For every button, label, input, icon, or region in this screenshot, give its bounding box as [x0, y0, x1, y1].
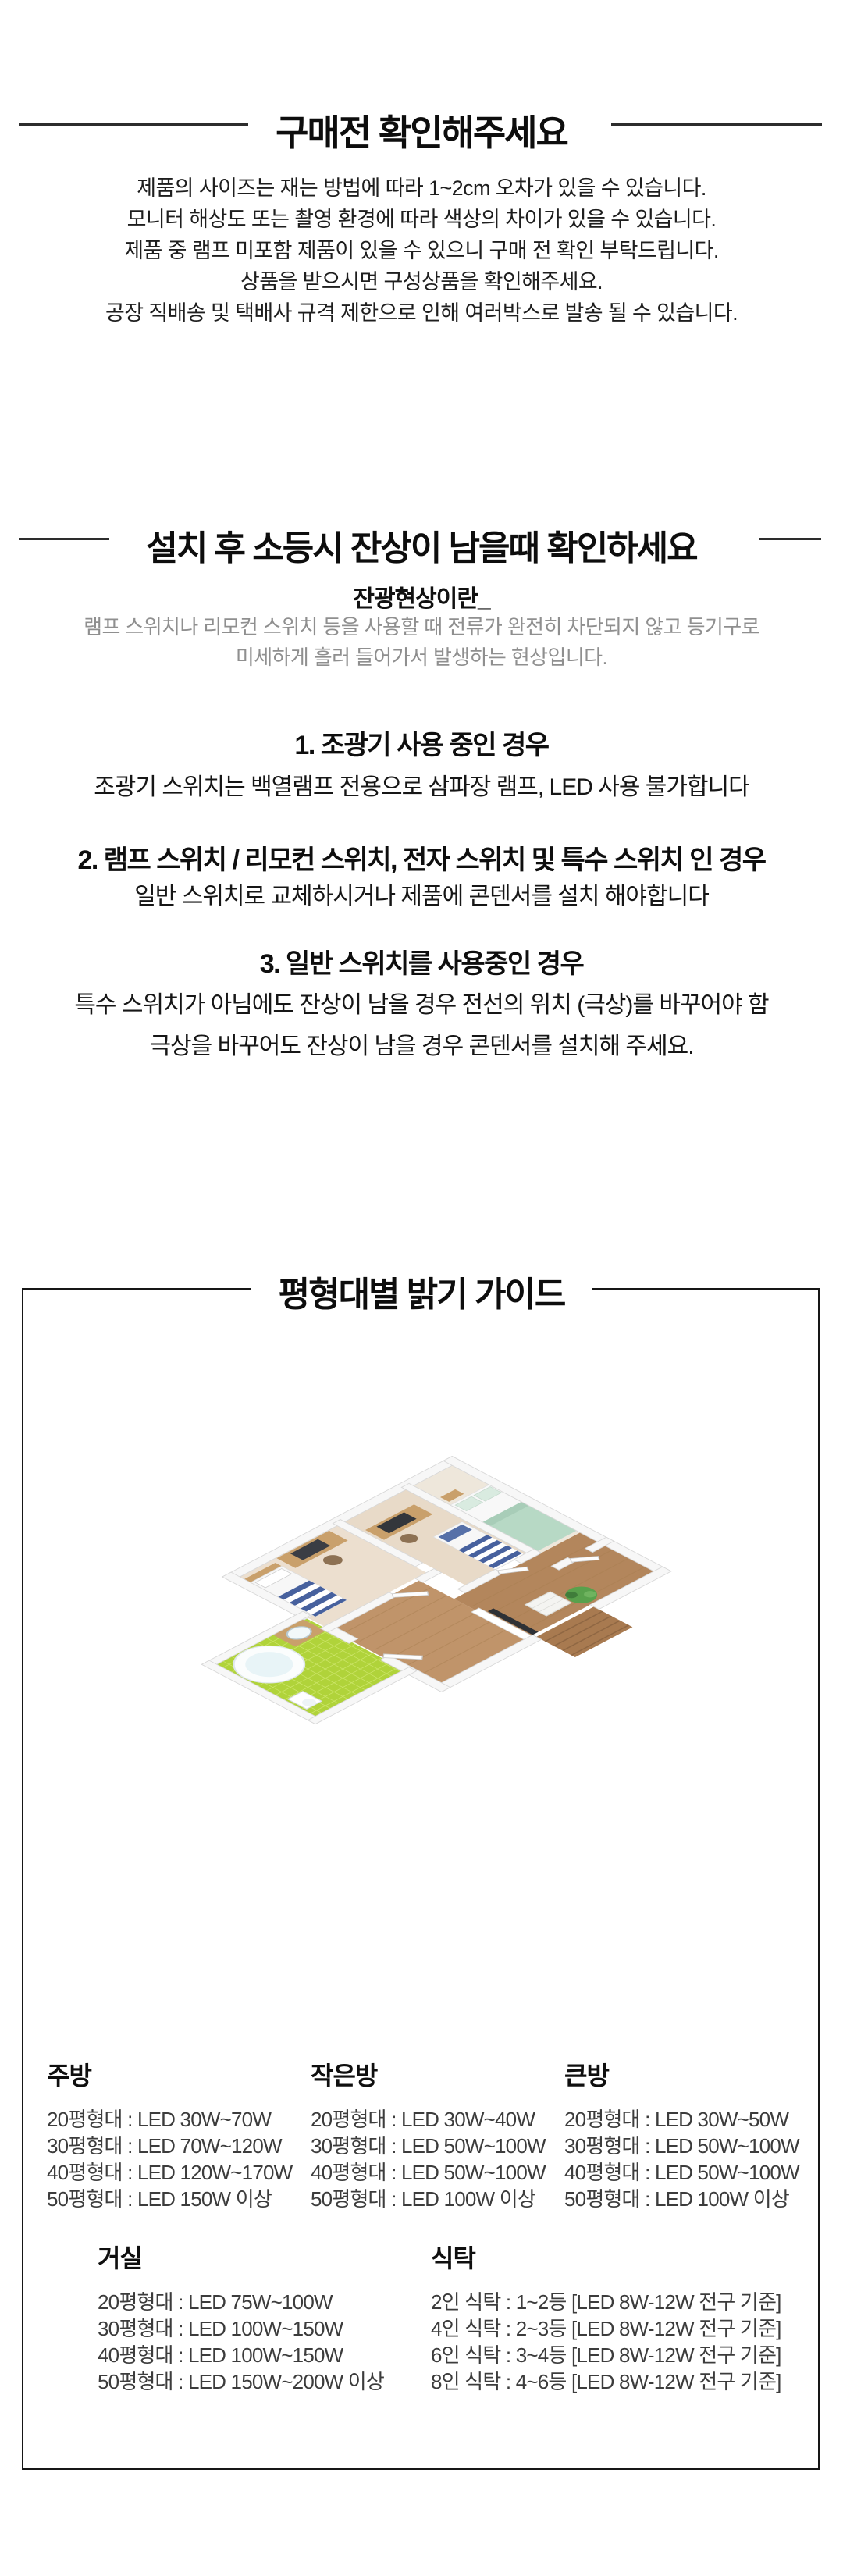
guide-title-wrap: 평형대별 밝기 가이드: [0, 1266, 843, 1316]
table-row: 20평형대 : LED 75W~100W: [98, 2289, 384, 2315]
notice-paragraph: 제품의 사이즈는 재는 방법에 따라 1~2cm 오차가 있을 수 있습니다. …: [0, 173, 843, 329]
table-row: 40평형대 : LED 120W~170W: [47, 2159, 292, 2186]
case1-body: 조광기 스위치는 백열램프 전용으로 삼파장 램프, LED 사용 불가합니다: [0, 767, 843, 808]
table-row: 50평형대 : LED 100W 이상: [311, 2186, 546, 2212]
table-big-room-title: 큰방: [564, 2056, 799, 2092]
table-dining: 식탁 2인 식탁 : 1~2등 [LED 8W-12W 전구 기준] 4인 식탁…: [431, 2239, 781, 2395]
table-row: 30평형대 : LED 50W~100W: [311, 2133, 546, 2159]
case2-heading: 2. 램프 스위치 / 리모컨 스위치, 전자 스위치 및 특수 스위치 인 경…: [0, 838, 843, 877]
table-small-room: 작은방 20평형대 : LED 30W~40W 30평형대 : LED 50W~…: [311, 2056, 546, 2212]
floorplan-svg: [90, 1371, 753, 1995]
table-row: 2인 식탁 : 1~2등 [LED 8W-12W 전구 기준]: [431, 2289, 781, 2315]
afterglow-subtitle: 잔광현상이란_: [0, 579, 843, 614]
table-living-room-title: 거실: [98, 2239, 384, 2275]
afterglow-title: 설치 후 소등시 잔상이 남을때 확인하세요: [0, 520, 843, 570]
table-row: 20평형대 : LED 30W~70W: [47, 2106, 292, 2133]
notice-line: 제품의 사이즈는 재는 방법에 따라 1~2cm 오차가 있을 수 있습니다.: [0, 173, 843, 204]
table-row: 20평형대 : LED 30W~50W: [564, 2106, 799, 2133]
table-big-room: 큰방 20평형대 : LED 30W~50W 30평형대 : LED 50W~1…: [564, 2056, 799, 2212]
table-row: 20평형대 : LED 30W~40W: [311, 2106, 546, 2133]
notice-line: 공장 직배송 및 택배사 규격 제한으로 인해 여러박스로 발송 될 수 있습니…: [0, 297, 843, 329]
case3-body-line: 극상을 바꾸어도 잔상이 남을 경우 콘덴서를 설치해 주세요.: [0, 1026, 843, 1067]
table-row: 30평형대 : LED 50W~100W: [564, 2133, 799, 2159]
table-row: 50평형대 : LED 150W 이상: [47, 2186, 292, 2212]
case2-body: 일반 스위치로 교체하시거나 제품에 콘덴서를 설치 해야합니다: [0, 876, 843, 917]
table-row: 40평형대 : LED 50W~100W: [311, 2159, 546, 2186]
afterglow-desc-line: 미세하게 흘러 들어가서 발생하는 현상입니다.: [0, 642, 843, 673]
case3-body-line: 특수 스위치가 아님에도 잔상이 남을 경우 전선의 위치 (극상)를 바꾸어야…: [0, 984, 843, 1026]
afterglow-desc-line: 램프 스위치나 리모컨 스위치 등을 사용할 때 전류가 완전히 차단되지 않고…: [0, 612, 843, 642]
table-row: 8인 식탁 : 4~6등 [LED 8W-12W 전구 기준]: [431, 2368, 781, 2395]
table-row: 30평형대 : LED 100W~150W: [98, 2315, 384, 2342]
product-detail-page: 구매전 확인해주세요 제품의 사이즈는 재는 방법에 따라 1~2cm 오차가 …: [0, 0, 843, 2576]
table-row: 6인 식탁 : 3~4등 [LED 8W-12W 전구 기준]: [431, 2342, 781, 2368]
isometric-group: [129, 1457, 705, 1759]
table-row: 40평형대 : LED 50W~100W: [564, 2159, 799, 2186]
case1-heading: 1. 조광기 사용 중인 경우: [0, 724, 843, 762]
table-small-room-title: 작은방: [311, 2056, 546, 2092]
notice-title: 구매전 확인해주세요: [0, 105, 843, 156]
case3-heading: 3. 일반 스위치를 사용중인 경우: [0, 942, 843, 980]
table-kitchen: 주방 20평형대 : LED 30W~70W 30평형대 : LED 70W~1…: [47, 2056, 292, 2212]
afterglow-description: 램프 스위치나 리모컨 스위치 등을 사용할 때 전류가 완전히 차단되지 않고…: [0, 612, 843, 673]
table-row: 40평형대 : LED 100W~150W: [98, 2342, 384, 2368]
table-row: 4인 식탁 : 2~3등 [LED 8W-12W 전구 기준]: [431, 2315, 781, 2342]
notice-line: 제품 중 램프 미포함 제품이 있을 수 있으니 구매 전 확인 부탁드립니다.: [0, 235, 843, 266]
notice-line: 모니터 해상도 또는 촬영 환경에 따라 색상의 차이가 있을 수 있습니다.: [0, 204, 843, 235]
notice-line: 상품을 받으시면 구성상품을 확인해주세요.: [0, 266, 843, 297]
floorplan-illustration: [90, 1371, 753, 1995]
table-kitchen-title: 주방: [47, 2056, 292, 2092]
table-dining-title: 식탁: [431, 2239, 781, 2275]
guide-title: 평형대별 밝기 가이드: [251, 1266, 593, 1316]
table-row: 50평형대 : LED 100W 이상: [564, 2186, 799, 2212]
table-row: 30평형대 : LED 70W~120W: [47, 2133, 292, 2159]
table-living-room: 거실 20평형대 : LED 75W~100W 30평형대 : LED 100W…: [98, 2239, 384, 2395]
case3-body: 특수 스위치가 아님에도 잔상이 남을 경우 전선의 위치 (극상)를 바꾸어야…: [0, 984, 843, 1067]
table-row: 50평형대 : LED 150W~200W 이상: [98, 2368, 384, 2395]
